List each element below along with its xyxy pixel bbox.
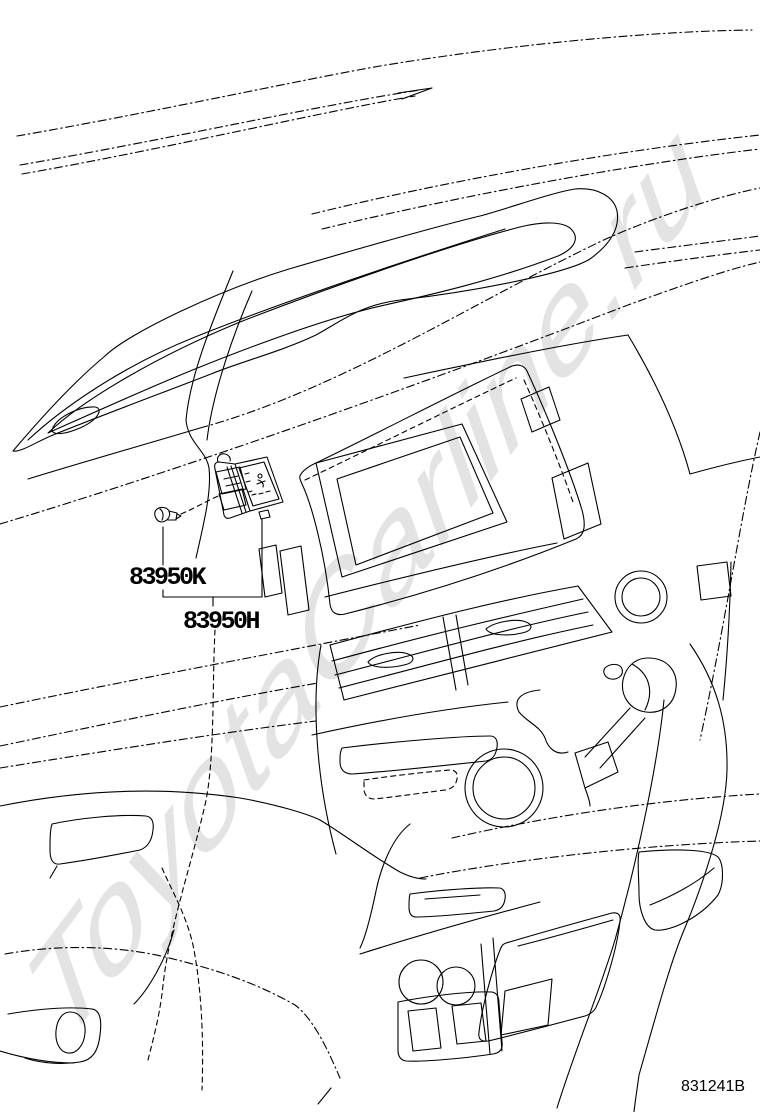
svg-text:ToyotaCarline.ru: ToyotaCarline.ru <box>18 77 718 1084</box>
